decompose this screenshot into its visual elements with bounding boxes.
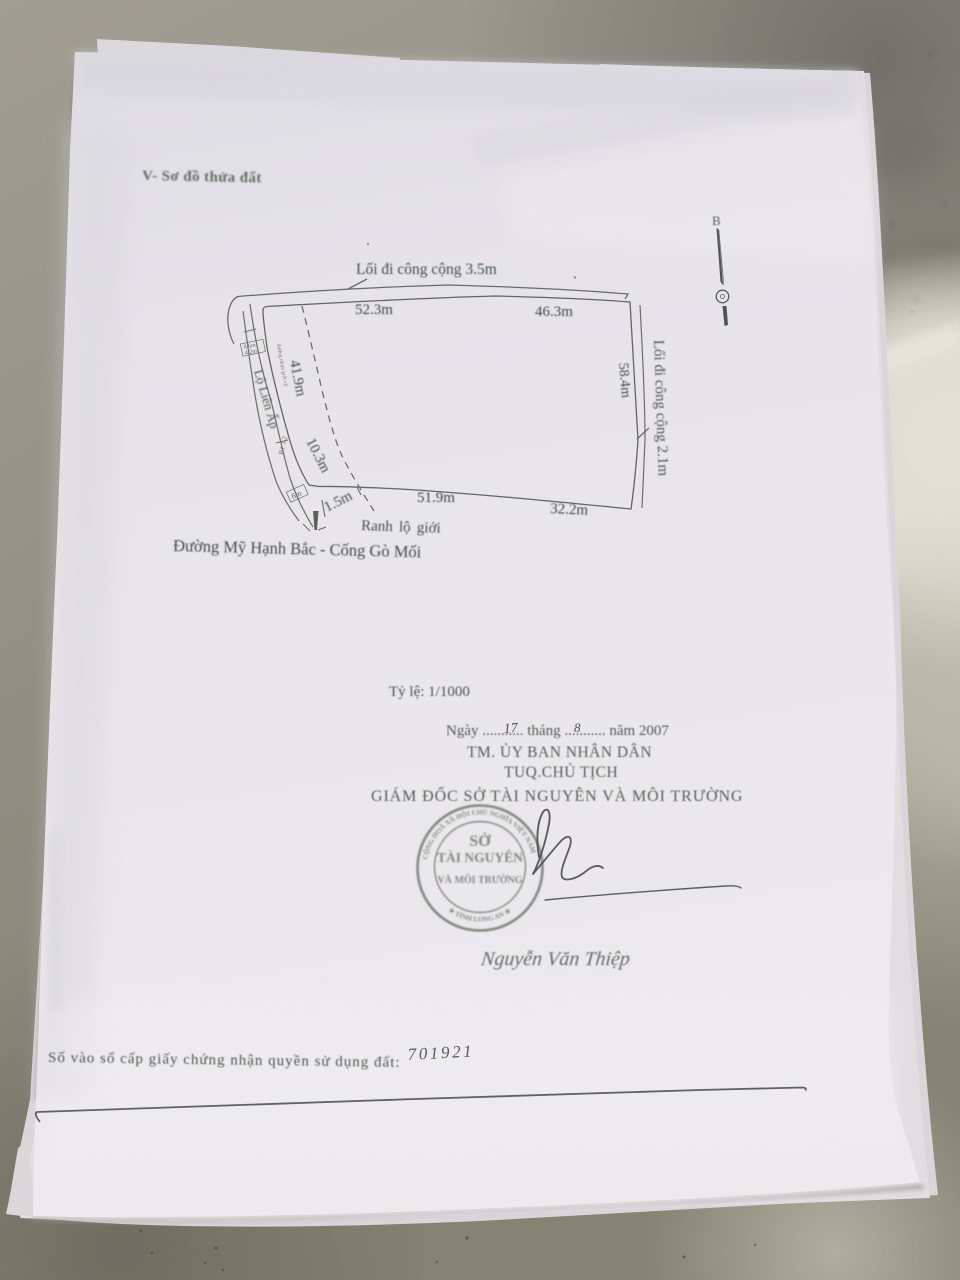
svg-text:VÀ MÔI TRƯỜNG: VÀ MÔI TRƯỜNG: [438, 873, 523, 886]
svg-text:Tỷ lệ: 1/1000: Tỷ lệ: 1/1000: [389, 684, 470, 700]
svg-text:GIÁM ĐỐC SỞ TÀI NGUYÊN VÀ MÔI: GIÁM ĐỐC SỞ TÀI NGUYÊN VÀ MÔI TRƯỜNG: [371, 786, 743, 805]
svg-text:32.2m: 32.2m: [550, 501, 589, 519]
svg-text:Lối đi công cộng 3.5m: Lối đi công cộng 3.5m: [356, 261, 497, 278]
svg-text:Ngày ........... tháng .......: Ngày ........... tháng ........... năm 2…: [446, 723, 669, 739]
svg-text:B: B: [712, 213, 721, 228]
svg-text:TM. ỦY BAN NHÂN DÂN: TM. ỦY BAN NHÂN DÂN: [467, 744, 652, 761]
svg-text:46.3m: 46.3m: [535, 304, 573, 320]
svg-text:17: 17: [503, 721, 519, 737]
svg-text:58.4m: 58.4m: [615, 362, 633, 399]
svg-text:V- Sơ đồ thửa đất: V- Sơ đồ thửa đất: [142, 168, 262, 187]
svg-text:TÀI NGUYÊN: TÀI NGUYÊN: [437, 850, 523, 865]
svg-text:51.9m: 51.9m: [417, 490, 455, 506]
svg-text:Nguyễn Văn Thiệp: Nguyễn Văn Thiệp: [479, 948, 631, 970]
svg-text:TUQ.CHỦ TỊCH: TUQ.CHỦ TỊCH: [504, 764, 618, 781]
svg-text:701921: 701921: [407, 1042, 475, 1064]
svg-text:52.3m: 52.3m: [355, 302, 393, 318]
svg-text:SỞ: SỞ: [469, 831, 491, 850]
svg-text:Ranh lộ giới: Ranh lộ giới: [361, 518, 441, 537]
svg-text:8: 8: [574, 720, 581, 735]
